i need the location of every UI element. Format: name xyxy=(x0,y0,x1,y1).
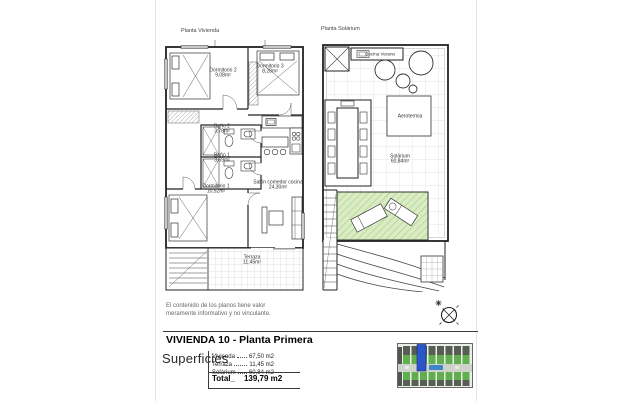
terrace-slider-door xyxy=(251,247,295,250)
skylight-shaft xyxy=(325,47,349,71)
dot-leader xyxy=(237,353,247,358)
disclaimer-text: El contenido de los planos tiene valor m… xyxy=(166,303,271,318)
site-plan-thumbnail xyxy=(397,343,473,388)
surface-row-terraza: Terraza 11,45 m2 xyxy=(212,361,274,368)
room-label-dormitorio2: Dormitorio 29,08m² xyxy=(209,69,236,80)
dimension-ticks xyxy=(215,40,265,47)
room-label-dormitorio1: Dormitorio 110,52m² xyxy=(202,185,229,196)
dot-leader xyxy=(234,361,247,366)
room-label-terraza: Terraza11,45m² xyxy=(243,256,261,267)
solarium-deck xyxy=(337,192,428,240)
divider-rule xyxy=(163,331,478,332)
label-cocina-verano: Cocina Verano xyxy=(365,51,395,56)
terrace xyxy=(166,248,303,290)
north-compass-icon xyxy=(432,297,464,329)
room-label-bano2: Baño 23,78m² xyxy=(214,125,230,136)
label-solarium: Solárium60,84m² xyxy=(390,155,410,166)
floor-plan-solarium xyxy=(321,42,451,292)
floor-plan-solarium-drawing xyxy=(321,42,451,292)
lower-tile-box xyxy=(421,256,443,282)
surface-row-vivienda: Vivienda 67,50 m2 xyxy=(212,353,274,360)
total-row: Total_139,79 m2 xyxy=(212,374,282,383)
page-edge-left xyxy=(155,0,156,401)
table-vertical-rule xyxy=(208,351,209,389)
room-label-dormitorio3: Dormitorio 38,28m² xyxy=(256,65,283,76)
site-pool xyxy=(429,365,443,370)
room-label-salon: Salón comedor cocina24,30m² xyxy=(253,181,302,192)
room-label-bano1: Baño 13,69m² xyxy=(214,154,230,165)
site-highlighted-unit xyxy=(417,345,426,372)
sheet-title: VIVIENDA 10 - Planta Primera xyxy=(166,334,313,346)
wardrobe-hall xyxy=(168,111,199,123)
right-plan-title: Planta Solárium xyxy=(321,26,360,32)
left-plan-title: Planta Vivienda xyxy=(181,28,219,34)
page-edge-right xyxy=(476,0,477,401)
total-underline-rule xyxy=(208,388,300,389)
north-star xyxy=(436,300,442,306)
total-separator-rule xyxy=(208,372,300,373)
label-aerotermia: Aerotermia xyxy=(398,114,422,119)
plan-sheet: Planta Vivienda xyxy=(0,0,630,401)
outdoor-dining-table xyxy=(325,100,371,186)
